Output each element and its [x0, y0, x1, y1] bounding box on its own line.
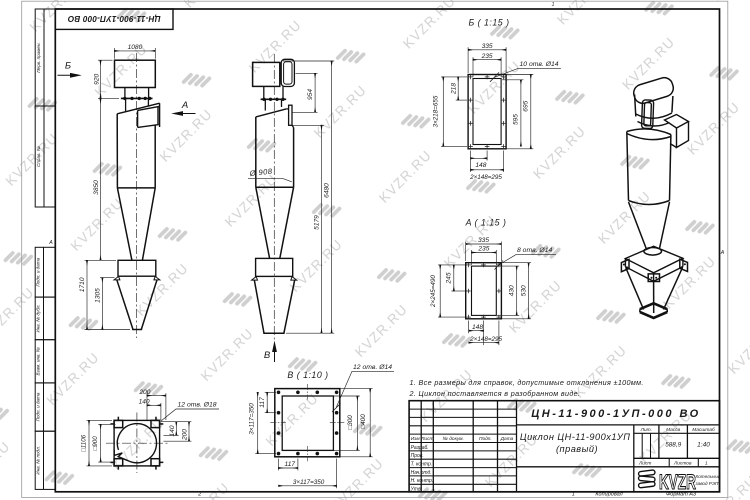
svg-text:245: 245	[446, 272, 453, 284]
svg-text:1:40: 1:40	[697, 441, 710, 448]
svg-text:Изм: Изм	[411, 436, 421, 442]
svg-text:2×148=295: 2×148=295	[469, 174, 502, 181]
svg-text:3×117=350: 3×117=350	[293, 479, 325, 486]
svg-text:3×218=655: 3×218=655	[433, 95, 440, 127]
svg-text:335: 335	[482, 43, 493, 50]
svg-text:335: 335	[478, 237, 489, 244]
svg-text:148: 148	[472, 324, 483, 331]
svg-text:200: 200	[138, 389, 150, 396]
svg-text:A ( 1:15 ): A ( 1:15 )	[465, 218, 507, 228]
svg-text:1. Все размеры для справок, до: 1. Все размеры для справок, допустимые о…	[410, 378, 644, 387]
svg-text:117: 117	[285, 461, 296, 468]
svg-text:140: 140	[169, 425, 176, 436]
svg-text:KVZR: KVZR	[659, 470, 696, 494]
svg-text:Масштаб: Масштаб	[692, 427, 715, 433]
svg-text:□300: □300	[347, 415, 354, 430]
svg-text:Листов: Листов	[673, 460, 692, 466]
svg-text:588,9: 588,9	[665, 441, 681, 448]
svg-text:200: 200	[182, 429, 189, 441]
svg-text:Лист: Лист	[420, 436, 433, 442]
svg-text:3×117=350: 3×117=350	[248, 403, 255, 435]
svg-text:1: 1	[552, 2, 555, 8]
svg-text:5179: 5179	[313, 215, 320, 230]
svg-text:140: 140	[139, 399, 150, 406]
svg-text:595: 595	[513, 114, 520, 125]
svg-text:1305: 1305	[94, 288, 101, 303]
svg-text:□900: □900	[92, 436, 99, 451]
svg-text:8 отв. Ø14: 8 отв. Ø14	[517, 247, 553, 254]
svg-text:А: А	[48, 240, 53, 246]
svg-text:Подп.: Подп.	[479, 436, 492, 442]
svg-text:954: 954	[307, 89, 314, 100]
svg-text:B ( 1:10 ): B ( 1:10 )	[287, 370, 328, 380]
svg-text:1710: 1710	[79, 277, 86, 292]
svg-text:1080: 1080	[128, 44, 143, 51]
svg-text:Н. контр.: Н. контр.	[411, 478, 434, 484]
svg-text:Перв. примен.: Перв. примен.	[36, 42, 41, 73]
svg-text:10 отв. Ø14: 10 отв. Ø14	[520, 61, 559, 68]
svg-text:Утв.: Утв.	[411, 487, 422, 493]
svg-text:Нач.отд.: Нач.отд.	[411, 470, 432, 476]
svg-text:Инв. № дубл.: Инв. № дубл.	[36, 304, 41, 332]
svg-text:235: 235	[481, 53, 493, 60]
svg-text:Справ. №: Справ. №	[36, 146, 41, 167]
svg-text:430: 430	[508, 285, 515, 296]
svg-text:Масса: Масса	[666, 427, 681, 433]
svg-text:Т. контр.: Т. контр.	[411, 462, 433, 468]
svg-text:№ докум.: № докум.	[443, 436, 464, 442]
svg-text:Взам. инв. №: Взам. инв. №	[36, 347, 41, 375]
svg-text:695: 695	[523, 100, 530, 111]
svg-text:Б: Б	[65, 61, 71, 72]
svg-text:Лит.: Лит.	[640, 427, 652, 433]
svg-text:148: 148	[475, 162, 486, 169]
svg-text:Подп. и дата: Подп. и дата	[36, 392, 41, 421]
svg-text:Котельный: Котельный	[696, 473, 721, 479]
svg-text:117: 117	[259, 397, 266, 408]
svg-text:Подп. и дата: Подп. и дата	[36, 257, 41, 286]
svg-text:12 отв. Ø18: 12 отв. Ø18	[178, 402, 217, 409]
svg-text:Разраб.: Разраб.	[411, 445, 429, 451]
svg-text:A: A	[181, 100, 188, 111]
svg-text:2×245=490: 2×245=490	[430, 275, 437, 308]
svg-text:□1106: □1106	[80, 434, 87, 452]
svg-text:2. Циклон поставляется в разоб: 2. Циклон поставляется в разобранном вид…	[409, 389, 581, 398]
svg-text:Инв. № подл.: Инв. № подл.	[36, 446, 41, 475]
svg-text:Циклон ЦН-11-900х1УП: Циклон ЦН-11-900х1УП	[520, 432, 631, 442]
svg-text:235: 235	[477, 246, 489, 253]
svg-text:6480: 6480	[324, 183, 331, 198]
svg-text:Лист: Лист	[638, 460, 651, 466]
svg-text:1: 1	[705, 460, 708, 466]
svg-text:(правый): (правый)	[556, 444, 598, 454]
svg-text:530: 530	[520, 285, 527, 296]
svg-text:ЦН-11-900-1УП-000 ВО: ЦН-11-900-1УП-000 ВО	[67, 14, 160, 23]
svg-text:завод РЭП: завод РЭП	[695, 481, 720, 486]
svg-text:Пров.: Пров.	[411, 453, 424, 459]
svg-text:2×148=295: 2×148=295	[469, 336, 502, 343]
svg-text:2: 2	[197, 492, 201, 498]
svg-text:3850: 3850	[93, 180, 100, 195]
svg-text:920: 920	[93, 73, 100, 84]
svg-text:ЦН-11-900-1УП-000 ВО: ЦН-11-900-1УП-000 ВО	[531, 408, 701, 420]
svg-text:12 отв. Ø14: 12 отв. Ø14	[353, 364, 392, 371]
svg-text:Дата: Дата	[500, 436, 514, 442]
svg-text:B: B	[264, 350, 271, 361]
svg-text:А: А	[720, 250, 725, 256]
svg-text:218: 218	[450, 83, 457, 95]
svg-text:Б ( 1:15 ): Б ( 1:15 )	[468, 18, 509, 28]
svg-text:□400: □400	[360, 414, 367, 429]
